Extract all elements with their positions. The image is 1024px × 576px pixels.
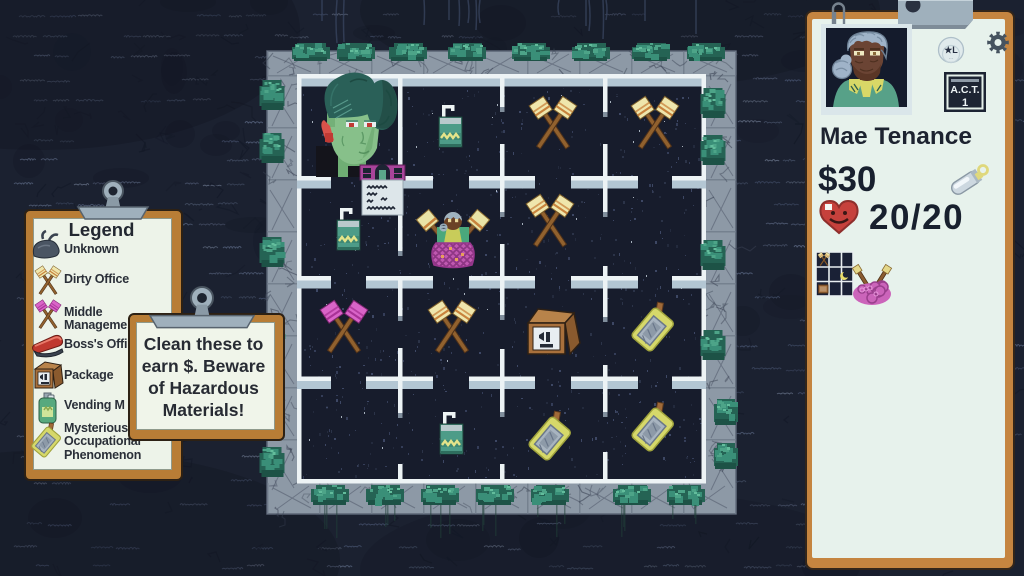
svg-text:A.C.T.: A.C.T.: [950, 84, 979, 96]
svg-text:1: 1: [962, 97, 968, 109]
svg-text:★L: ★L: [944, 45, 958, 55]
svg-text:···: ···: [949, 56, 954, 61]
